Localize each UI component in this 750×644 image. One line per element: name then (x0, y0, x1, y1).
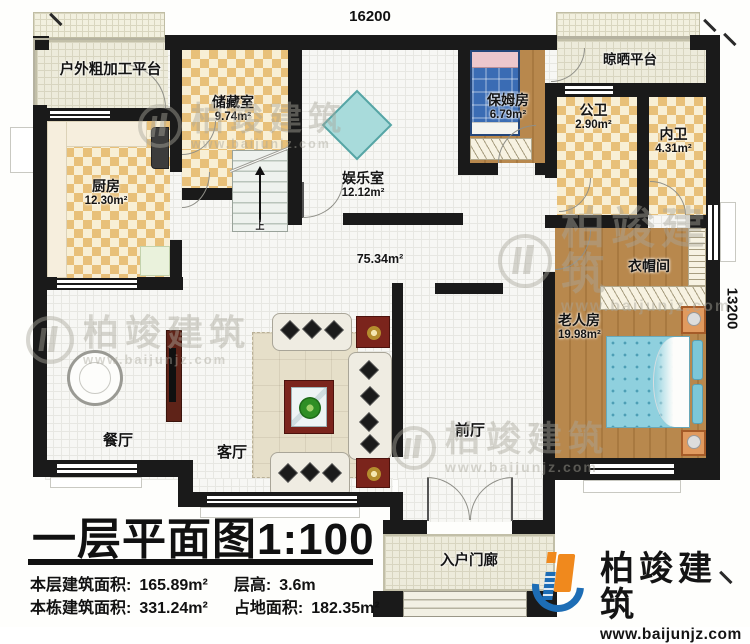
dimension-right: 13200 (724, 277, 741, 341)
brand-url: www.baijunjz.com (600, 626, 750, 644)
sofa-pillow (322, 463, 342, 483)
window-sill (10, 127, 34, 173)
wall (690, 215, 706, 228)
room-label-elderly: 老人房19.98m² (550, 312, 630, 343)
wall-stub (435, 283, 503, 294)
wall-top-column (690, 35, 706, 50)
dining-table (67, 350, 123, 406)
window (50, 109, 110, 120)
sofa-pillow (360, 386, 380, 406)
wall (458, 35, 470, 175)
wall (458, 163, 498, 175)
title-underline (28, 559, 373, 565)
room-label-public-bath: 公卫2.90m² (566, 102, 621, 133)
room-label-kitchen: 厨房12.30m² (66, 178, 146, 209)
wall (543, 460, 555, 534)
wall (545, 215, 648, 228)
tv (169, 348, 176, 402)
wall (545, 35, 557, 48)
knob (367, 326, 381, 340)
sofa-pillow (359, 412, 379, 432)
dining-table-center (79, 362, 111, 394)
window-sill (50, 477, 142, 488)
wall (383, 520, 427, 534)
room-label-foyer: 前厅 (442, 422, 498, 440)
sofa-pillow (280, 320, 300, 340)
dimension-tick (723, 33, 736, 46)
wall (543, 272, 555, 458)
nanny-bed-sheet (472, 122, 518, 134)
sofa-pillow (302, 319, 322, 339)
wall (545, 83, 557, 178)
knob (367, 467, 381, 481)
brand-name: 柏竣建筑 (600, 552, 750, 623)
wall-left (33, 105, 47, 477)
window (565, 84, 613, 96)
nightstand (681, 430, 706, 456)
room-label-porch: 入户门廊 (426, 553, 512, 570)
room-label-dining: 餐厅 (90, 432, 146, 450)
dimension-tick (703, 19, 716, 32)
elderly-bed-cushion (692, 384, 703, 424)
wall (288, 35, 302, 225)
end-table (356, 458, 390, 488)
sofa-pillow (324, 320, 344, 340)
hall-area-label: 75.34m² (342, 252, 418, 267)
stats-row-1: 本层建筑面积:165.89m²层高:3.6m (30, 571, 316, 595)
plant (299, 397, 321, 419)
platform-edge (33, 38, 167, 40)
stair-up-arrow (259, 170, 261, 222)
wall (33, 277, 57, 290)
wall (392, 283, 403, 457)
platform-edge (557, 36, 706, 39)
sofa-pillow (359, 360, 379, 380)
room-label-nanny: 保姆房6.79m² (472, 92, 544, 123)
window-sill (583, 480, 681, 493)
wall-top (165, 35, 557, 50)
wall (535, 163, 545, 175)
sofa-top (272, 313, 352, 351)
window (706, 205, 720, 260)
stats-row-2: 本栋建筑面积:331.24m²占地面积:182.35m² (30, 594, 380, 618)
cloakroom-wardrobe (688, 228, 706, 286)
room-label-drying: 晾晒平台 (592, 52, 668, 68)
sofa-pillow (360, 434, 380, 454)
window (57, 462, 137, 475)
logo-flag (546, 552, 556, 563)
floor-plan-page: 上 (0, 0, 750, 627)
nightstand (681, 306, 706, 334)
room-label-living: 客厅 (204, 444, 260, 462)
elderly-bed-cushion (692, 340, 703, 380)
page-title: 一层平面图1:100 (32, 503, 375, 567)
nanny-bed-pillow (472, 52, 518, 68)
brand-logo-icon (532, 552, 590, 614)
wall-stub (430, 215, 461, 224)
wall (137, 277, 183, 290)
room-label-outdoor-platform: 户外粗加工平台 (48, 62, 173, 79)
coffee-table (284, 380, 334, 434)
window (590, 462, 674, 476)
sofa-pillow (278, 463, 298, 483)
wall (170, 35, 182, 172)
room-label-cloakroom: 衣帽间 (613, 258, 685, 275)
kitchen-counter-left (47, 121, 67, 278)
sofa-right (348, 352, 392, 460)
brand-logo: 柏竣建筑 www.baijunjz.com (532, 552, 750, 644)
porch-steps (403, 591, 527, 617)
room-label-entertainment: 娱乐室12.12m² (323, 170, 403, 201)
elderly-bed (606, 336, 690, 428)
canopy-right (556, 12, 700, 38)
platform-edge (33, 38, 35, 108)
dimension-top: 16200 (330, 8, 410, 25)
sofa-pillow (300, 462, 320, 482)
room-label-storage: 储藏室9.74m² (193, 94, 273, 125)
window-sill (720, 202, 736, 262)
lamp (687, 312, 701, 326)
window-serving (57, 278, 137, 290)
kitchen-island (140, 246, 170, 276)
elderly-bed-blanket (653, 337, 689, 427)
stair-up-label: 上 (250, 221, 270, 232)
end-table (356, 316, 390, 348)
fridge (151, 127, 169, 169)
room-label-inner-bath: 内卫4.31m² (646, 126, 701, 157)
lamp (687, 435, 701, 449)
